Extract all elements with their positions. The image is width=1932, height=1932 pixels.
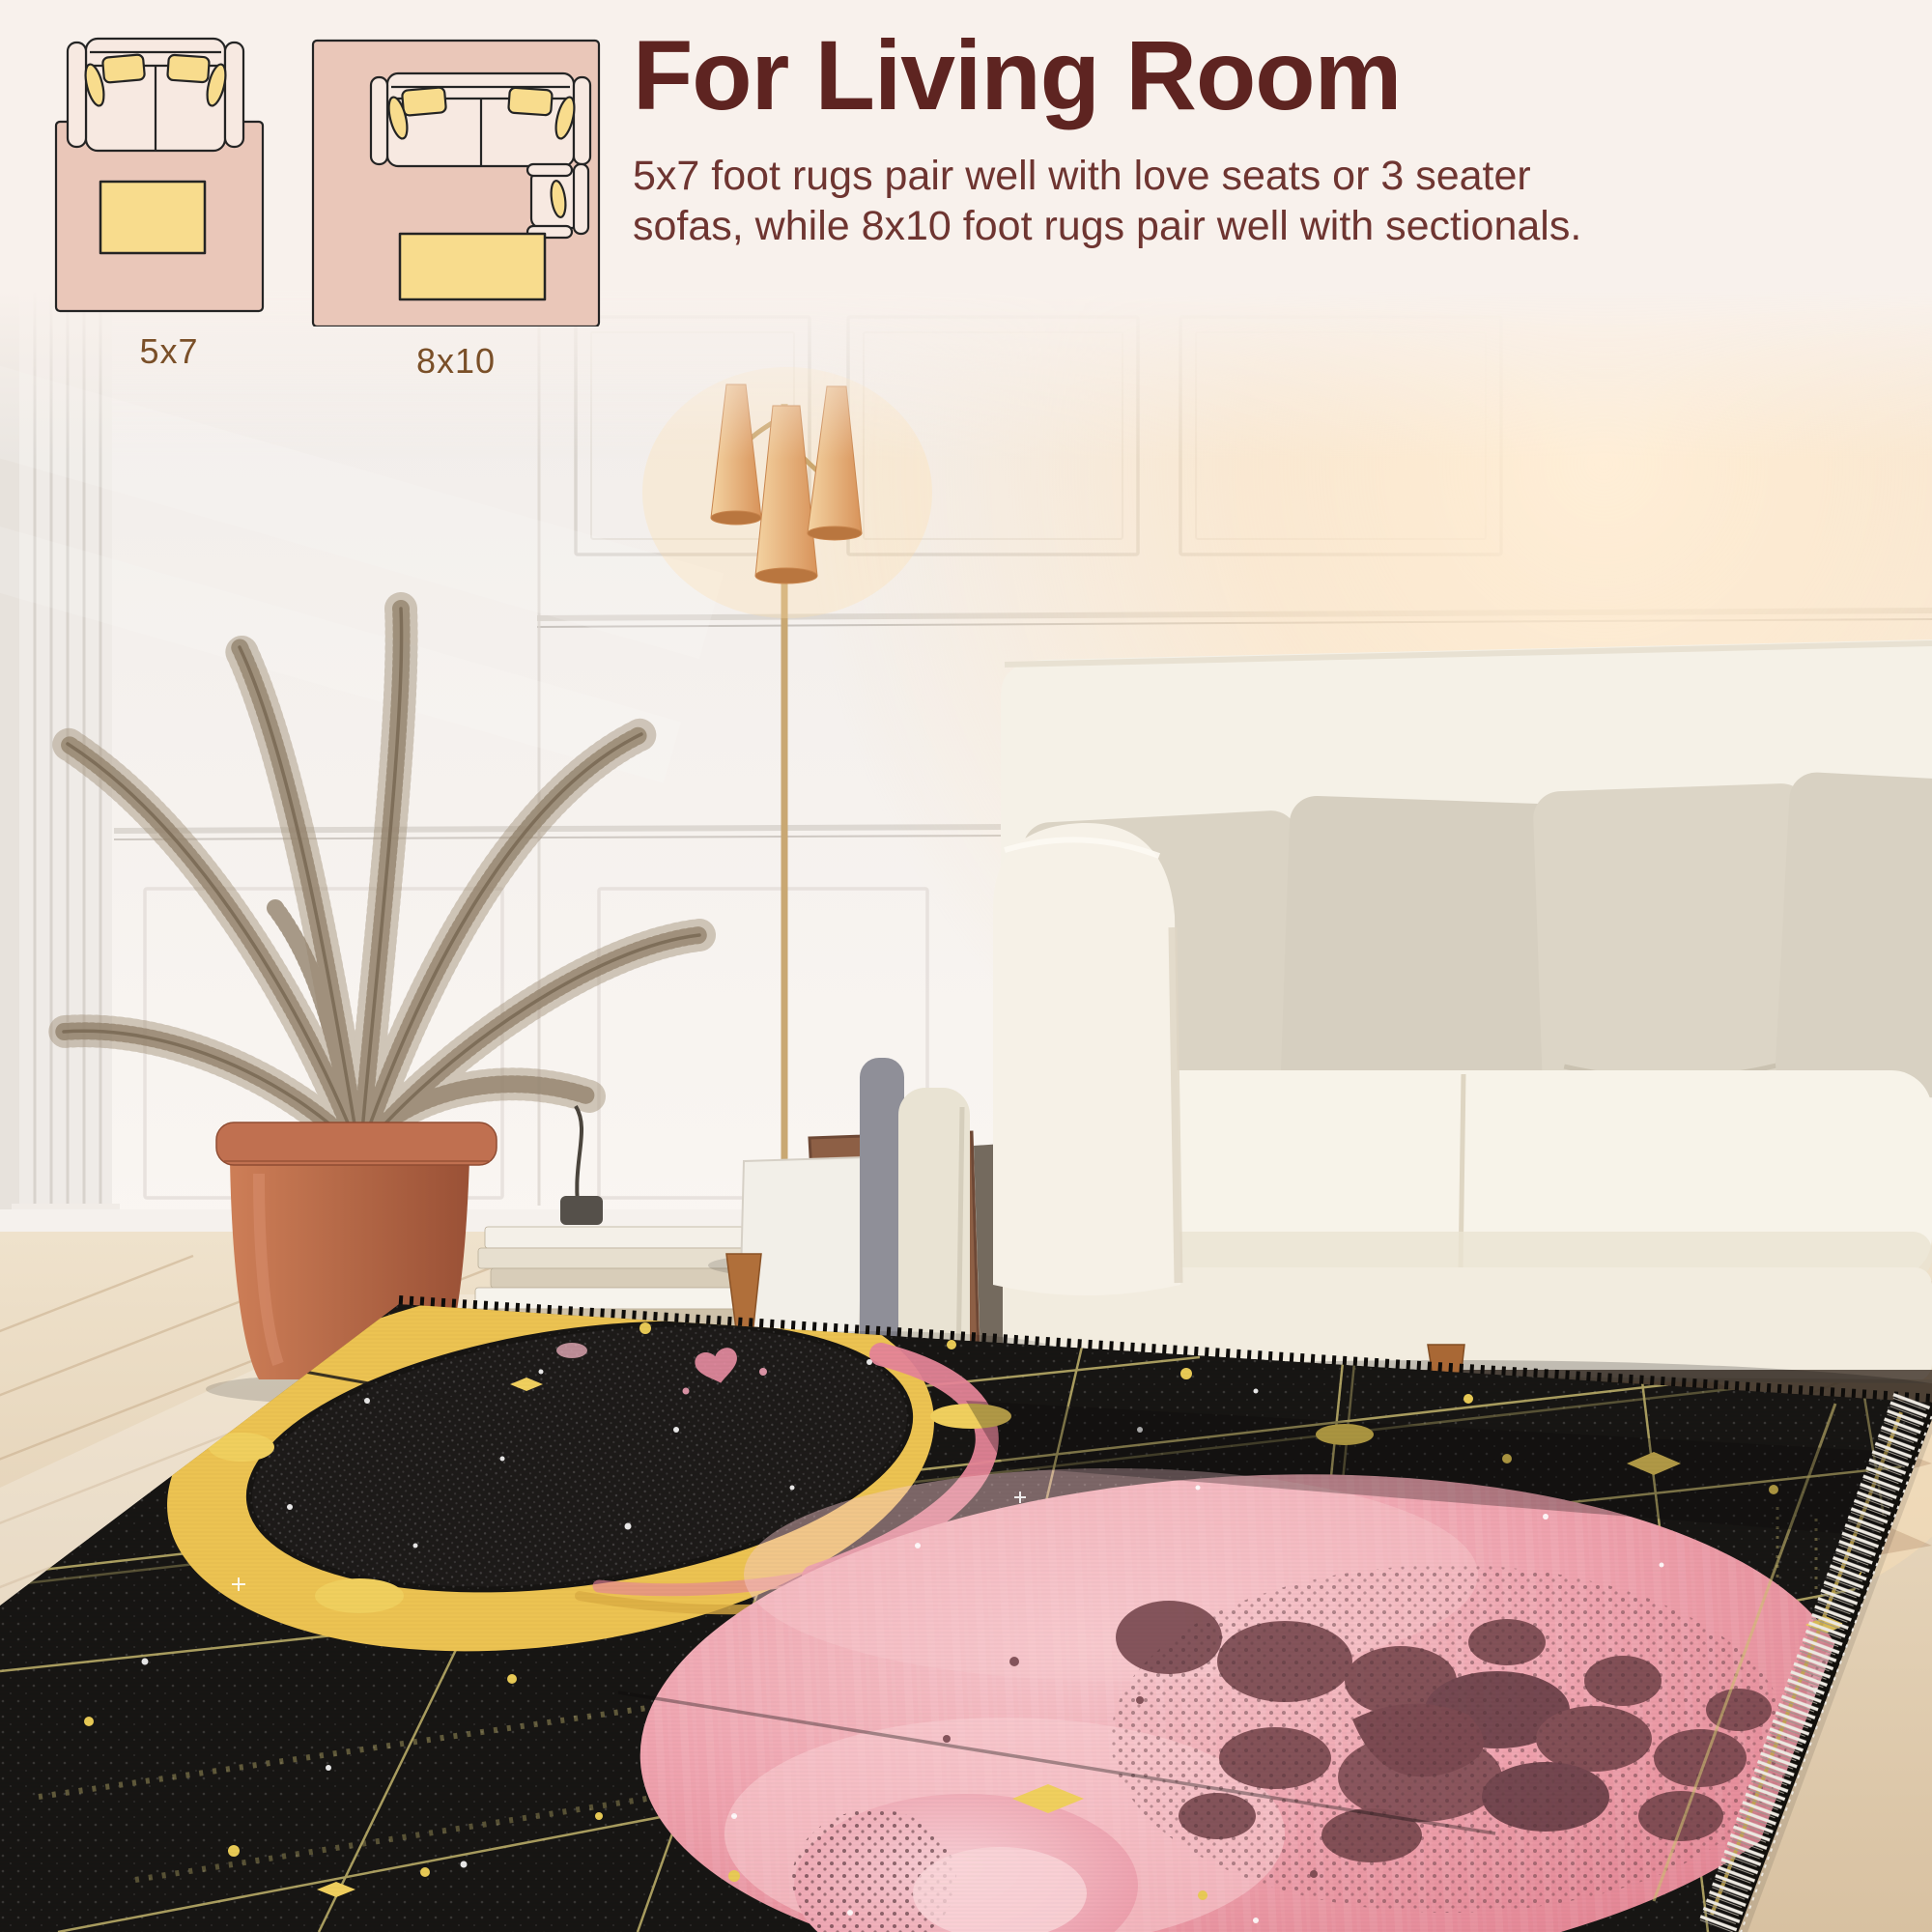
armchair-top-view [527, 164, 588, 238]
top-fade [0, 290, 1932, 459]
coffee-table [400, 234, 545, 299]
description-line-1: 5x7 foot rugs pair well with love seats … [633, 151, 1918, 201]
description-text: 5x7 foot rugs pair well with love seats … [633, 151, 1918, 252]
header-copy: For Living Room 5x7 foot rugs pair well … [633, 25, 1918, 252]
loveseat-sofa-top-view [68, 39, 243, 151]
size-label-8x10: 8x10 [311, 341, 601, 382]
coffee-table [100, 182, 205, 253]
sofa-arm [993, 823, 1180, 1295]
page-title: For Living Room [633, 25, 1918, 126]
sofa-top-view [371, 73, 590, 166]
rug-product-infographic: 5x7 [0, 0, 1932, 1932]
rug-size-diagram-5x7: 5x7 [48, 27, 290, 372]
size-label-5x7: 5x7 [48, 331, 290, 372]
living-room-photo [0, 290, 1932, 1932]
description-line-2: sofas, while 8x10 foot rugs pair well wi… [633, 201, 1918, 251]
rug-size-diagram-8x10: 8x10 [311, 39, 601, 382]
